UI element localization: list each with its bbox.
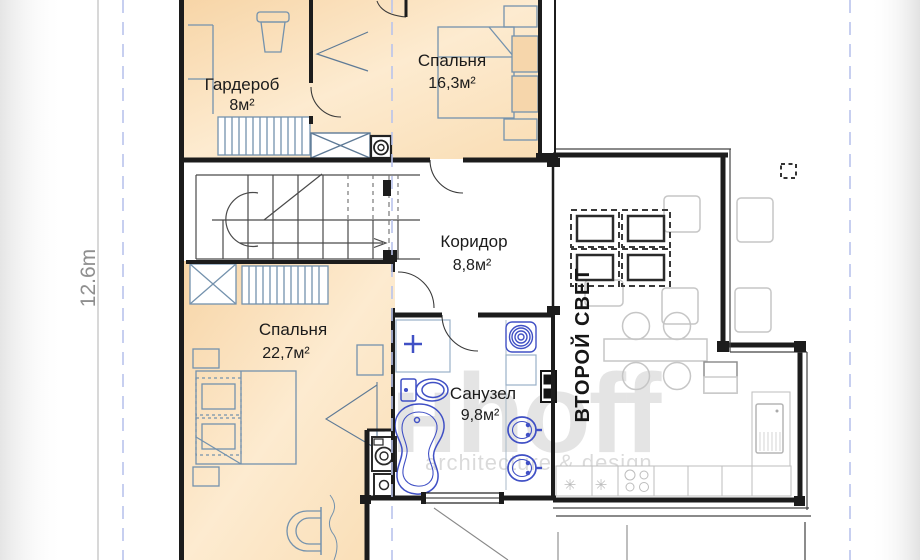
washing-machine-icon bbox=[371, 136, 391, 158]
room-area-bedroom-large: 22,7м² bbox=[262, 345, 310, 362]
closet-x-icon bbox=[190, 264, 236, 304]
right-edge-shade bbox=[870, 0, 920, 560]
room-area-bedroom-small: 16,3м² bbox=[428, 75, 476, 92]
floorplan-svg: анhoff architecture & design bbox=[0, 0, 920, 560]
room-name-bedroom-large: Спальня bbox=[259, 320, 327, 339]
room-fill-bedroom-large bbox=[184, 261, 395, 560]
ghost-fridge bbox=[756, 404, 783, 453]
closet-hatch-icon bbox=[242, 266, 328, 304]
shaft-x-icon bbox=[311, 133, 370, 158]
left-edge-shade bbox=[0, 0, 64, 560]
room-area-corridor: 8,8м² bbox=[453, 257, 492, 274]
counter-icon bbox=[396, 320, 450, 372]
closet-hatch-icon bbox=[218, 117, 310, 155]
floorplan-canvas: анhoff architecture & design bbox=[0, 0, 920, 560]
room-name-wardrobe: Гардероб bbox=[205, 75, 280, 94]
ghost-sink-symbol: ✳ bbox=[564, 477, 577, 494]
room-name-bedroom-small: Спальня bbox=[418, 51, 486, 70]
dimension-label: 12.6m bbox=[77, 249, 100, 307]
room-name-bathroom: Санузел bbox=[450, 384, 516, 403]
room-area-wardrobe: 8м² bbox=[229, 97, 255, 114]
window-icon bbox=[421, 492, 504, 504]
ghost-sink-symbol-2: ✳ bbox=[595, 477, 608, 494]
room-name-corridor: Коридор bbox=[440, 232, 507, 251]
room-name-double-height: ВТОРОЙ СВЕТ bbox=[570, 268, 594, 423]
room-area-bathroom: 9,8м² bbox=[461, 407, 500, 424]
